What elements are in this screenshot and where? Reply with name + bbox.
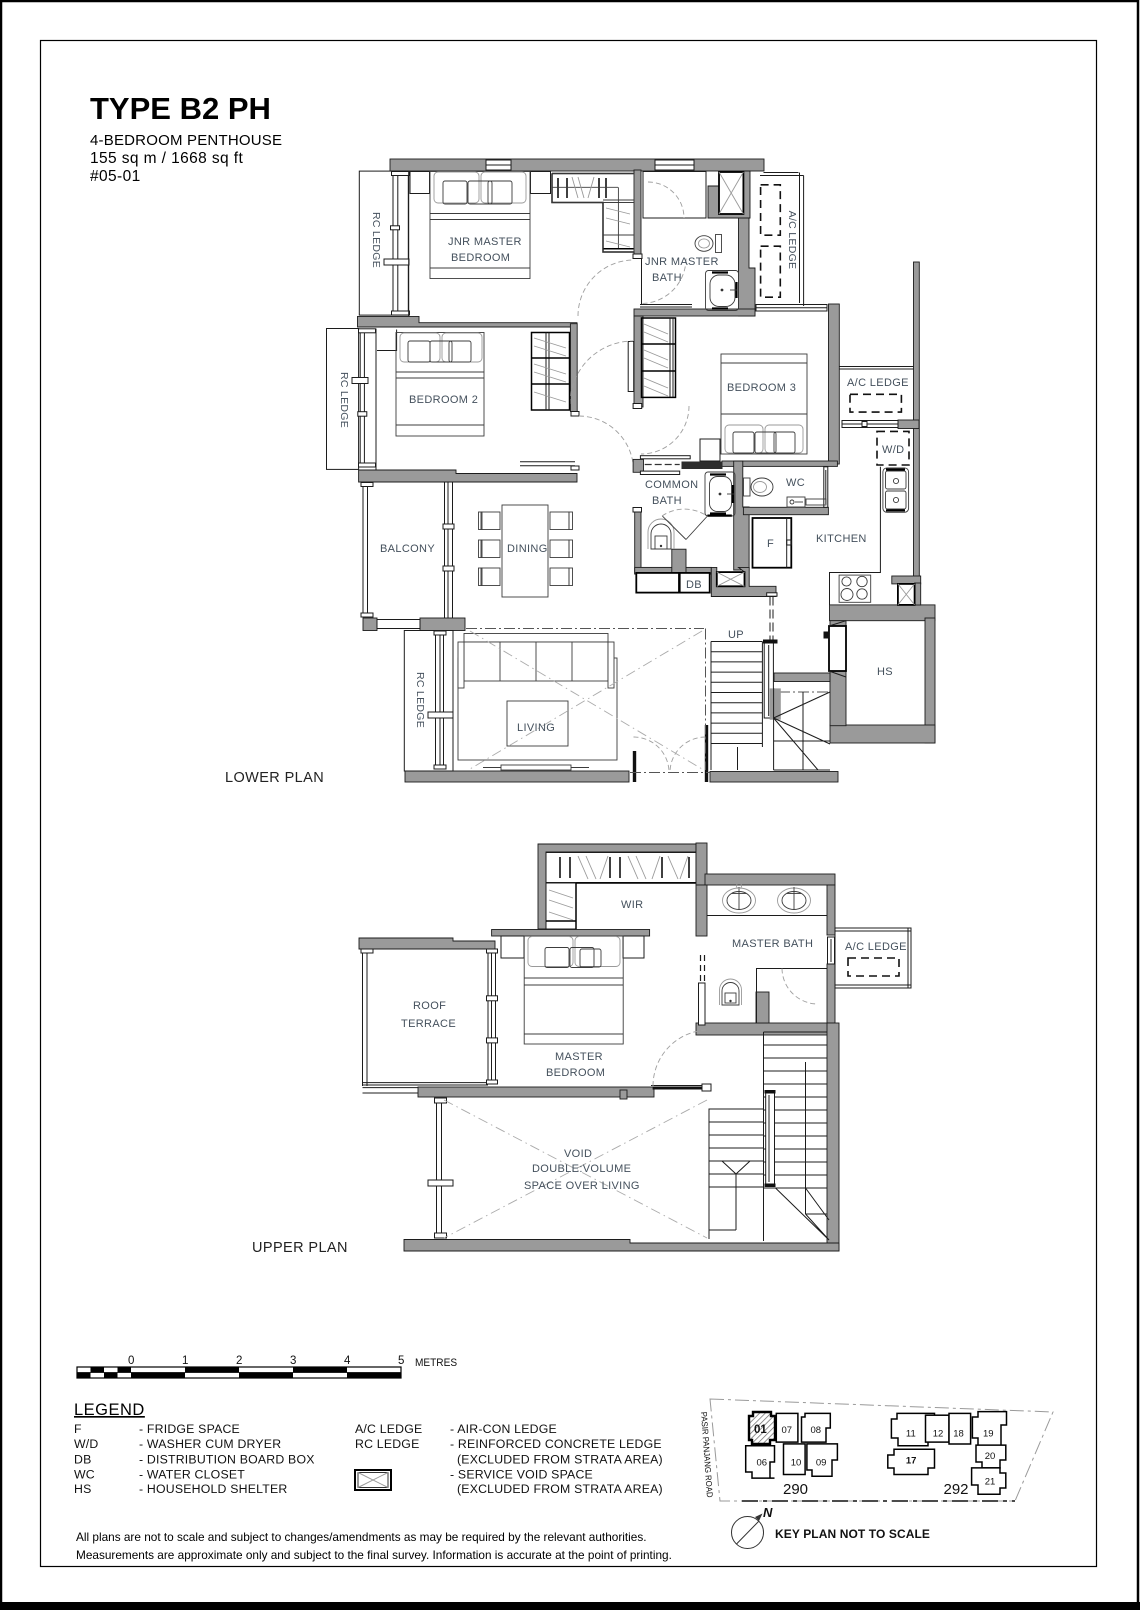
svg-text:BEDROOM 2: BEDROOM 2	[409, 394, 478, 406]
svg-text:LOWER PLAN: LOWER PLAN	[225, 770, 324, 786]
svg-text:F: F	[74, 1422, 82, 1436]
svg-text:DOUBLE:VOLUME: DOUBLE:VOLUME	[532, 1163, 631, 1175]
svg-text:BEDROOM: BEDROOM	[451, 252, 510, 264]
svg-text:- REINFORCED CONCRETE LEDGE: - REINFORCED CONCRETE LEDGE	[450, 1437, 662, 1451]
svg-text:08: 08	[811, 1425, 822, 1436]
svg-text:RC LEDGE: RC LEDGE	[370, 212, 382, 268]
svg-text:11: 11	[906, 1429, 916, 1440]
svg-text:3: 3	[290, 1355, 296, 1367]
svg-text:DINING: DINING	[507, 543, 548, 555]
svg-text:- WATER CLOSET: - WATER CLOSET	[139, 1468, 245, 1482]
svg-text:09: 09	[816, 1458, 827, 1469]
svg-text:10: 10	[791, 1458, 802, 1469]
svg-text:SPACE OVER LIVING: SPACE OVER LIVING	[524, 1180, 640, 1192]
svg-text:BATH: BATH	[652, 272, 682, 284]
svg-text:A/C LEDGE: A/C LEDGE	[786, 211, 798, 270]
svg-text:F: F	[767, 538, 774, 550]
svg-text:A/C LEDGE: A/C LEDGE	[847, 377, 909, 389]
svg-text:290: 290	[783, 1481, 808, 1498]
svg-text:METRES: METRES	[415, 1357, 457, 1369]
svg-text:N: N	[763, 1505, 773, 1520]
svg-text:UP: UP	[728, 629, 744, 641]
svg-text:(EXCLUDED FROM STRATA AREA): (EXCLUDED FROM STRATA AREA)	[457, 1482, 663, 1496]
svg-text:BATH: BATH	[652, 495, 682, 507]
svg-text:- SERVICE VOID SPACE: - SERVICE VOID SPACE	[450, 1468, 593, 1482]
svg-text:(EXCLUDED FROM STRATA AREA): (EXCLUDED FROM STRATA AREA)	[457, 1453, 663, 1467]
svg-text:TERRACE: TERRACE	[401, 1018, 456, 1030]
svg-text:RC LEDGE: RC LEDGE	[355, 1437, 419, 1451]
svg-text:RC LEDGE: RC LEDGE	[414, 672, 426, 728]
svg-text:292: 292	[944, 1481, 969, 1498]
svg-text:BALCONY: BALCONY	[380, 543, 435, 555]
svg-text:- FRIDGE SPACE: - FRIDGE SPACE	[139, 1422, 240, 1436]
svg-text:A/C LEDGE: A/C LEDGE	[355, 1422, 422, 1436]
svg-text:- HOUSEHOLD SHELTER: - HOUSEHOLD SHELTER	[139, 1482, 287, 1496]
svg-text:KEY PLAN NOT TO SCALE: KEY PLAN NOT TO SCALE	[775, 1527, 930, 1541]
svg-text:20: 20	[985, 1451, 996, 1462]
svg-text:06: 06	[757, 1458, 768, 1469]
svg-text:- WASHER CUM DRYER: - WASHER CUM DRYER	[139, 1437, 281, 1451]
svg-text:HS: HS	[74, 1482, 91, 1496]
svg-text:WC: WC	[74, 1468, 95, 1482]
svg-text:21: 21	[985, 1477, 996, 1488]
svg-text:07: 07	[782, 1425, 793, 1436]
svg-text:WC: WC	[786, 477, 805, 489]
svg-text:A/C LEDGE: A/C LEDGE	[845, 941, 907, 953]
svg-text:WIR: WIR	[621, 899, 643, 911]
svg-text:All plans are not to scale and: All plans are not to scale and subject t…	[76, 1530, 647, 1544]
svg-text:MASTER BATH: MASTER BATH	[732, 938, 813, 950]
svg-text:DB: DB	[74, 1453, 91, 1467]
svg-text:VOID: VOID	[564, 1148, 592, 1160]
svg-text:19: 19	[983, 1428, 994, 1439]
svg-text:COMMON: COMMON	[645, 479, 698, 491]
svg-text:- AIR-CON LEDGE: - AIR-CON LEDGE	[450, 1422, 557, 1436]
svg-text:W/D: W/D	[882, 444, 904, 456]
svg-text:HS: HS	[877, 666, 893, 678]
svg-text:LIVING: LIVING	[517, 722, 555, 734]
svg-text:Measurements are approximate o: Measurements are approximate only and su…	[76, 1548, 672, 1562]
svg-text:MASTER: MASTER	[555, 1051, 603, 1063]
svg-text:4: 4	[344, 1355, 351, 1367]
svg-text:01: 01	[754, 1424, 767, 1436]
svg-text:155 sq m / 1668 sq ft: 155 sq m / 1668 sq ft	[90, 150, 243, 167]
svg-text:4-BEDROOM PENTHOUSE: 4-BEDROOM PENTHOUSE	[90, 132, 282, 149]
svg-text:1: 1	[182, 1355, 188, 1367]
svg-text:RC LEDGE: RC LEDGE	[338, 372, 350, 428]
svg-text:5: 5	[398, 1355, 404, 1367]
svg-text:UPPER PLAN: UPPER PLAN	[252, 1240, 348, 1256]
svg-text:2: 2	[236, 1355, 242, 1367]
svg-text:17: 17	[906, 1456, 917, 1467]
svg-text:12: 12	[933, 1429, 944, 1440]
svg-text:W/D: W/D	[74, 1437, 99, 1451]
svg-text:BEDROOM: BEDROOM	[546, 1067, 605, 1079]
svg-text:18: 18	[953, 1428, 964, 1439]
svg-text:JNR MASTER: JNR MASTER	[448, 236, 522, 248]
svg-text:LEGEND: LEGEND	[74, 1401, 145, 1419]
svg-text:DB: DB	[686, 579, 702, 591]
svg-text:- DISTRIBUTION BOARD BOX: - DISTRIBUTION BOARD BOX	[139, 1453, 315, 1467]
svg-text:ROOF: ROOF	[413, 1000, 446, 1012]
svg-text:KITCHEN: KITCHEN	[816, 533, 867, 545]
svg-text:0: 0	[128, 1355, 134, 1367]
svg-text:JNR MASTER: JNR MASTER	[645, 256, 719, 268]
svg-text:TYPE B2 PH: TYPE B2 PH	[90, 91, 271, 126]
svg-text:#05-01: #05-01	[90, 168, 141, 185]
svg-text:BEDROOM 3: BEDROOM 3	[727, 382, 796, 394]
